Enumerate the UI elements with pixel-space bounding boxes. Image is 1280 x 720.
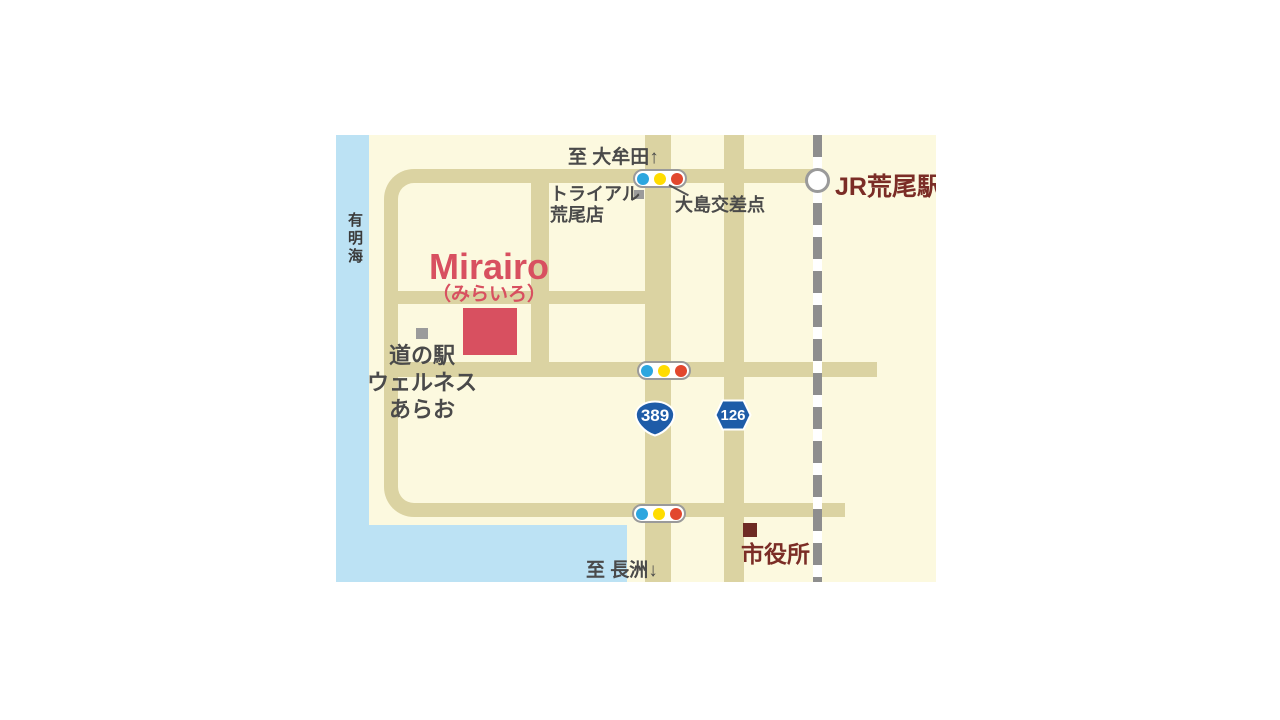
mirairo-kana: （みらいろ） (426, 285, 552, 305)
roadside-station-marker (416, 328, 428, 339)
traffic-light-blue-dot (641, 365, 653, 377)
traffic-light-icon-oshima (633, 169, 687, 188)
traffic-light-yellow-dot (658, 365, 670, 377)
station-circle-icon (805, 168, 830, 193)
traffic-light-icon-south (632, 504, 686, 523)
traffic-light-icon-main (637, 361, 691, 380)
mirairo-title: Mirairo (426, 249, 552, 285)
traffic-light-red-dot (671, 173, 683, 185)
traffic-light-yellow-dot (654, 173, 666, 185)
traffic-light-red-dot (670, 508, 682, 520)
route-389-number: 389 (634, 400, 676, 437)
trial-store-label-line2: 荒尾店 (550, 205, 640, 226)
access-map: 389 126 至 大牟田↑ トライアル 荒尾店 大島交差点 JR荒尾駅 Mir… (336, 135, 936, 582)
traffic-light-blue-dot (637, 173, 649, 185)
to-nagasu-label: 至 長洲↓ (586, 555, 658, 582)
traffic-light-red-dot (675, 365, 687, 377)
jr-railway-line (813, 135, 822, 582)
venue-label-group: Mirairo （みらいろ） (426, 249, 552, 305)
roadside-station-label-line2: ウェルネス (336, 369, 508, 396)
traffic-light-yellow-dot (653, 508, 665, 520)
jr-arao-station-label: JR荒尾駅 (835, 167, 936, 203)
ariake-sea-label: 有明海 (344, 212, 365, 266)
route-126-number: 126 (714, 399, 752, 431)
sea-area-bottom (336, 525, 627, 582)
city-hall-label: 市役所 (741, 535, 810, 569)
roadside-station-label: 道の駅 ウェルネス あらお (336, 342, 508, 423)
traffic-light-blue-dot (636, 508, 648, 520)
route-389-badge-icon: 389 (634, 400, 676, 437)
roadside-station-label-line1: 道の駅 (336, 342, 508, 369)
route-126-badge-icon: 126 (714, 399, 752, 431)
roadside-station-label-line3: あらお (336, 396, 508, 423)
to-omuta-label: 至 大牟田↑ (568, 142, 659, 169)
trial-store-label: トライアル 荒尾店 (550, 184, 640, 226)
trial-store-label-line1: トライアル (550, 184, 640, 205)
